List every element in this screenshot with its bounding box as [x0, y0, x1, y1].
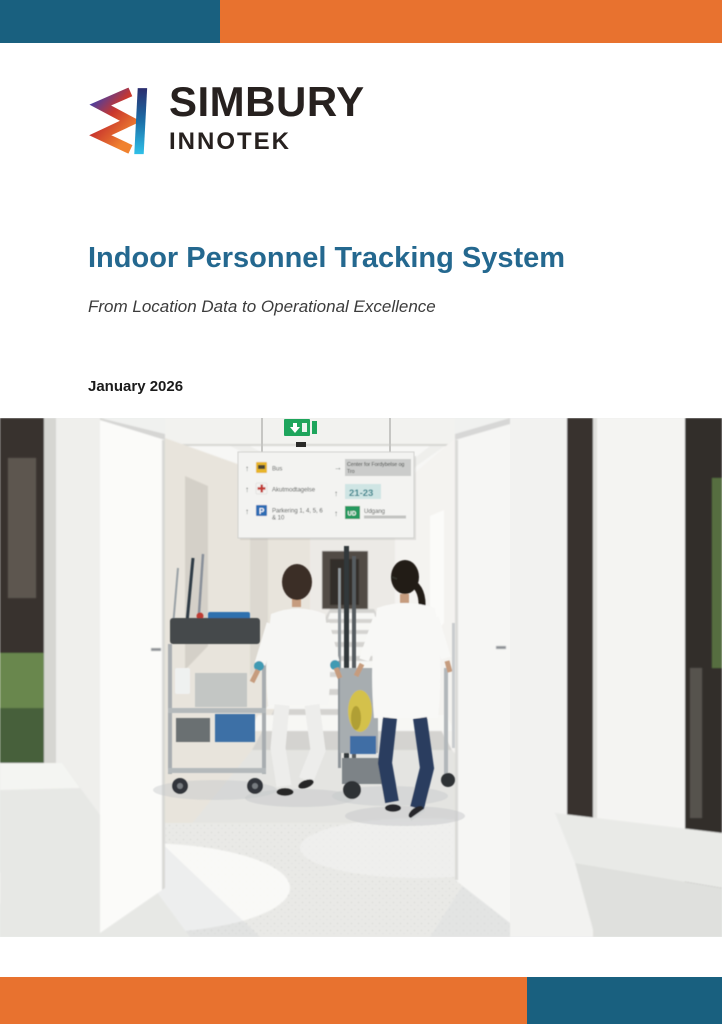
- sign-badge-text: UD: [348, 512, 357, 518]
- cover-photo: ↑ Bus ↑ Akutmodtagelse ↑ P Parkering 1, …: [0, 418, 722, 937]
- hair: [282, 564, 312, 600]
- logo-s-glyph: [100, 92, 130, 150]
- exit-sign: [284, 419, 317, 436]
- navy-trousers: [385, 718, 392, 802]
- staff-and-carts: [153, 546, 465, 826]
- sign-label: Udgang: [364, 509, 385, 515]
- direction-signboard: ↑ Bus ↑ Akutmodtagelse ↑ P Parkering 1, …: [238, 452, 416, 540]
- top-bar-orange-block: [220, 0, 722, 43]
- sign-arrow: →: [334, 463, 342, 472]
- document-date: January 2026: [88, 378, 183, 395]
- sign-label: & 10: [272, 516, 285, 522]
- sign-label: Parkering 1, 4, 5, 6: [272, 509, 323, 515]
- svg-text:P: P: [259, 507, 265, 516]
- brand-logo-icon: [88, 83, 154, 163]
- right-open-door: [455, 418, 510, 923]
- door-handle: [151, 648, 161, 651]
- sign-label: Akutmodtagelse: [272, 488, 316, 494]
- bottom-bar-orange-block: [0, 977, 527, 1024]
- sign-arrow: ↑: [334, 489, 338, 498]
- logo-i-bar: [134, 88, 147, 154]
- cover-page: SIMBURY INNOTEK Indoor Personnel Trackin…: [0, 0, 722, 1024]
- top-accent-bar: [0, 0, 722, 43]
- corridor-illustration: ↑ Bus ↑ Akutmodtagelse ↑ P Parkering 1, …: [0, 418, 722, 937]
- sign-label: Center for Fordybelse og: [347, 462, 404, 468]
- sign-label: 21-23: [349, 488, 373, 499]
- brand-logo: SIMBURY INNOTEK: [88, 83, 365, 163]
- sign-arrow: ↑: [245, 507, 249, 516]
- right-window-wall: [510, 418, 722, 937]
- brand-wordmark: SIMBURY INNOTEK: [169, 81, 365, 156]
- bottom-bar-teal-block: [527, 977, 722, 1024]
- document-subtitle: From Location Data to Operational Excell…: [88, 297, 436, 317]
- sign-arrow: ↑: [334, 509, 338, 518]
- sign-arrow: ↑: [245, 485, 249, 494]
- sign-label: Bus: [272, 467, 282, 473]
- sign-arrow: ↑: [245, 464, 249, 473]
- document-title: Indoor Personnel Tracking System: [88, 242, 565, 275]
- door-handle: [496, 646, 506, 649]
- sign-label: Tro: [347, 469, 355, 475]
- top-bar-teal-block: [0, 0, 220, 43]
- brand-name: SIMBURY: [169, 81, 365, 123]
- white-tunic: [267, 609, 330, 706]
- bottom-accent-bar: [0, 977, 722, 1024]
- left-open-door: [100, 418, 165, 933]
- brand-subname: INNOTEK: [169, 128, 365, 156]
